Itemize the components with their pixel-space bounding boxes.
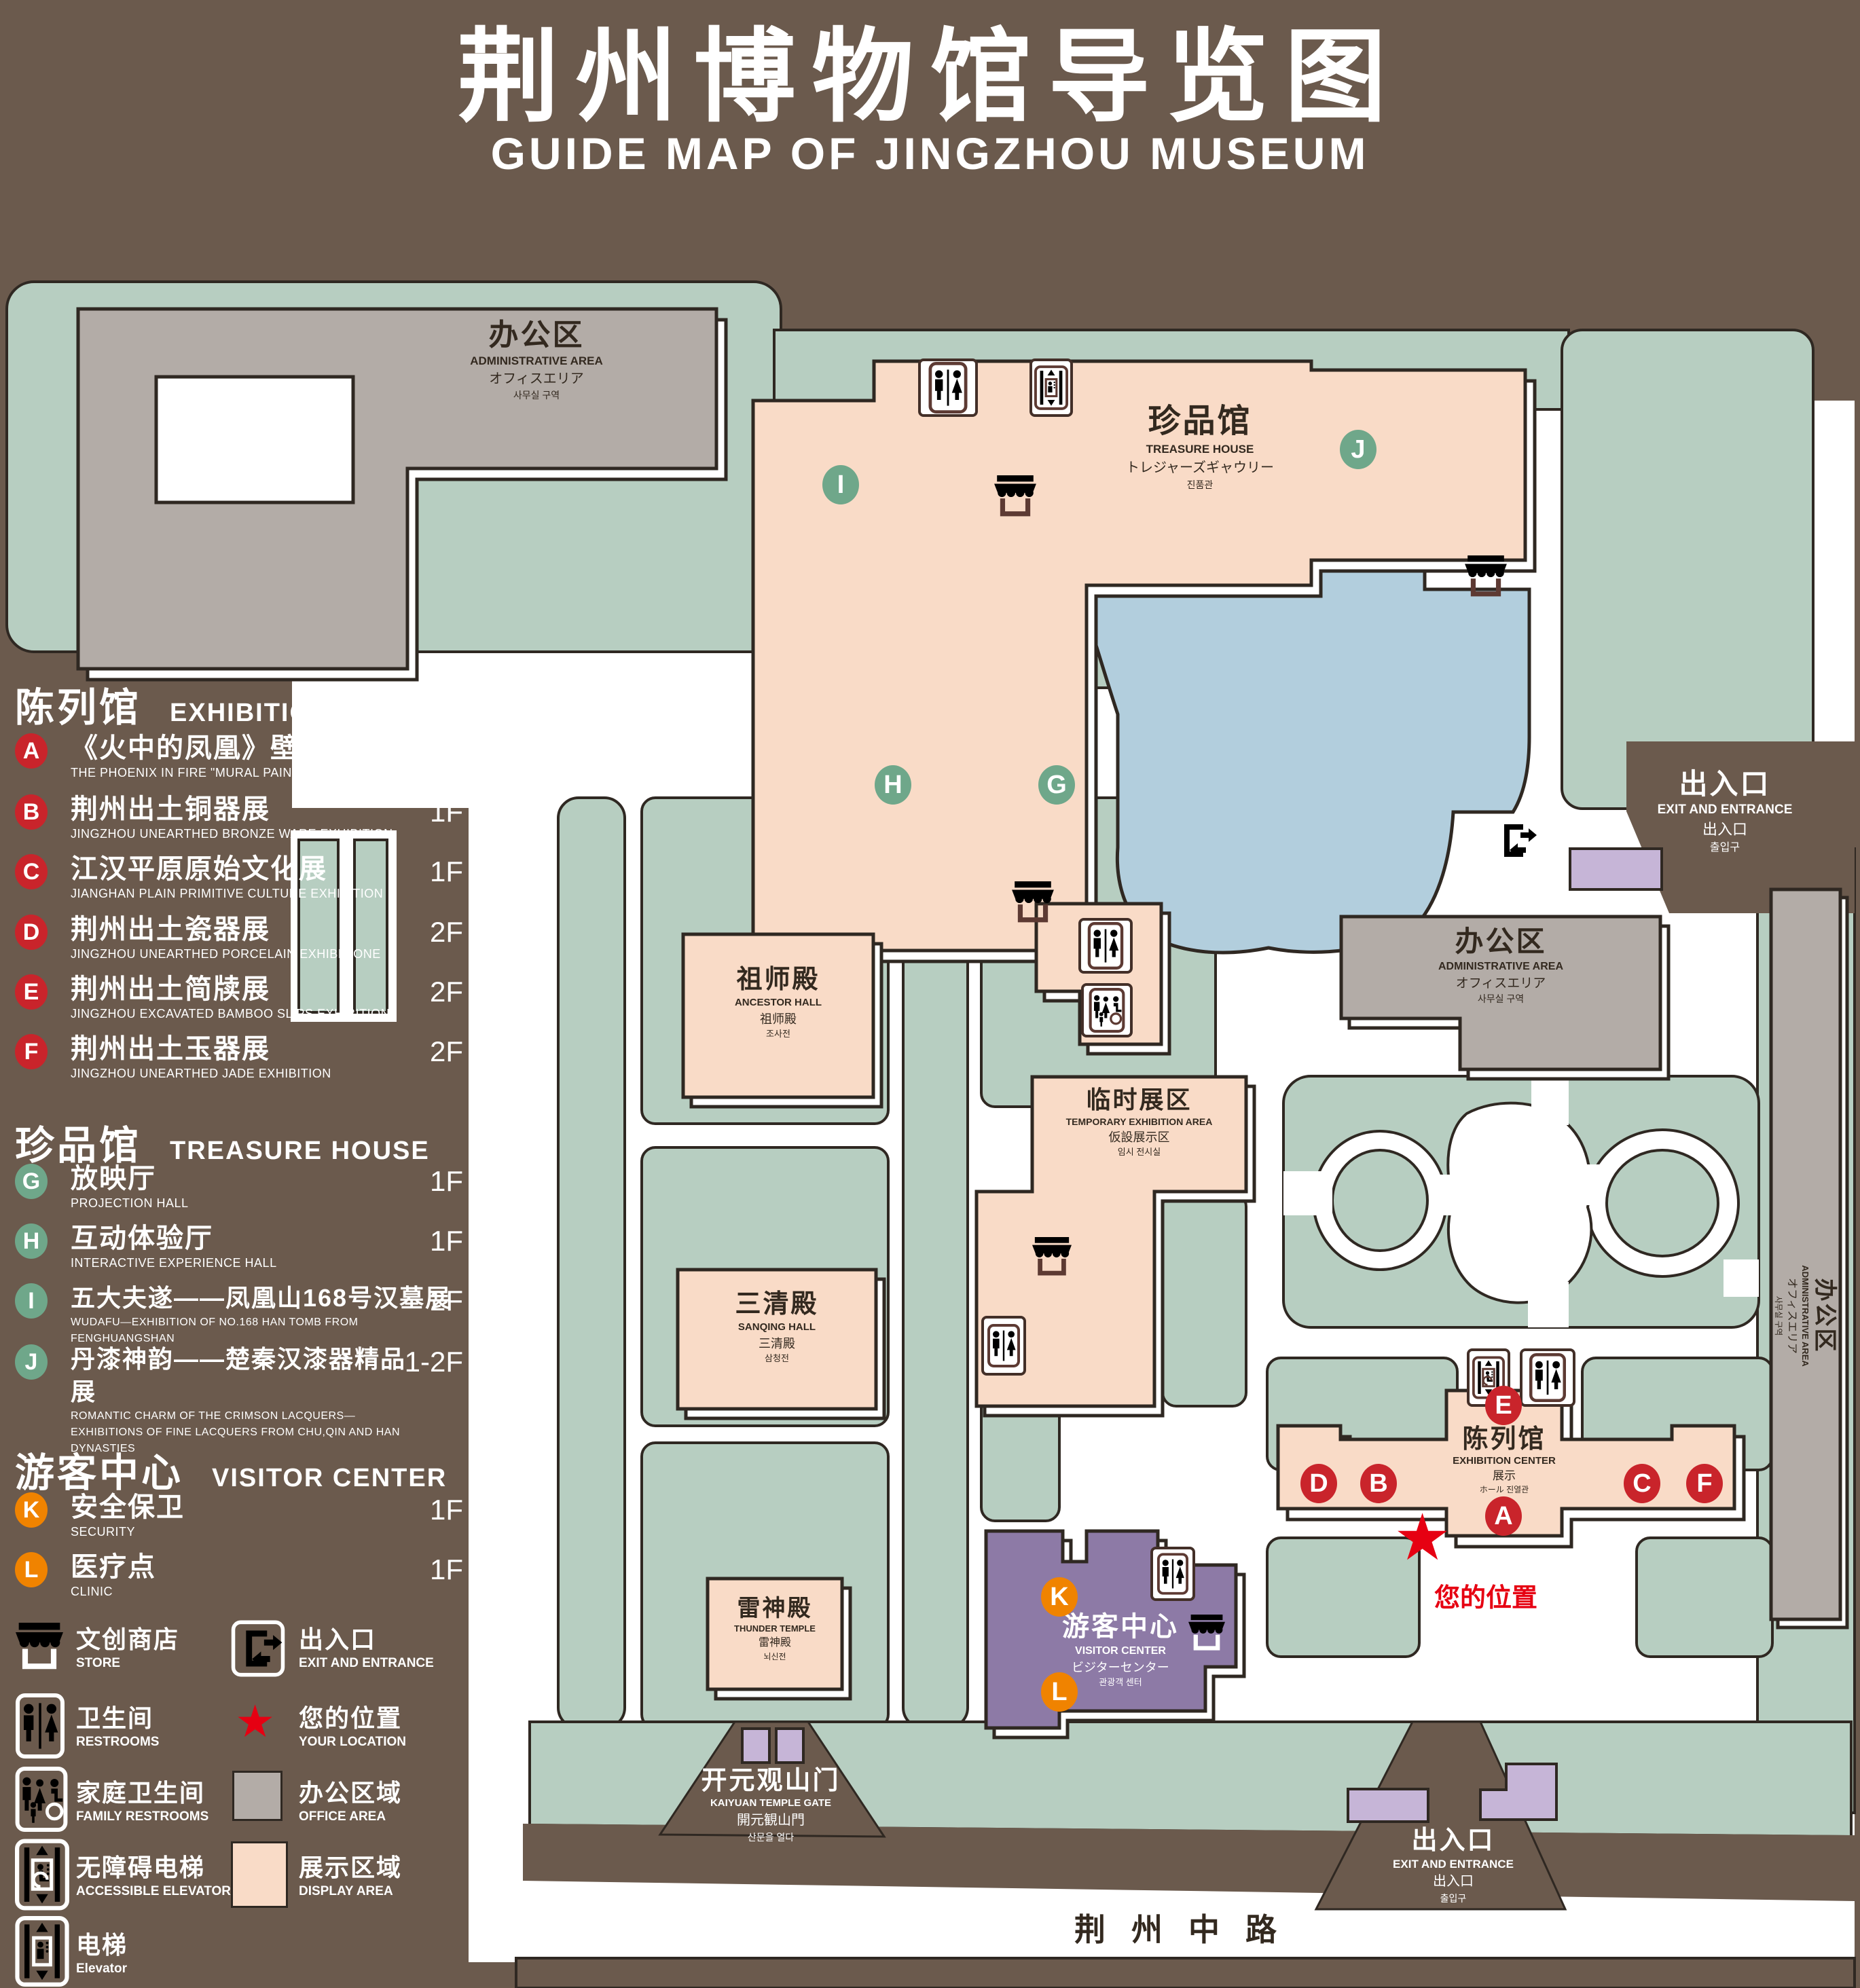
restroom-icon — [15, 1693, 65, 1759]
label-thunder-temple: 雷神殿 THUNDER TEMPLE 雷神殿 뇌신전 — [708, 1594, 842, 1662]
your-location-star-icon: ★ — [1393, 1506, 1451, 1570]
map-badge-f: F — [1686, 1464, 1723, 1503]
label-temporary-exhibition: 临时展区 TEMPORARY EXHIBITION AREA 仮設展示区 임시 … — [1032, 1085, 1246, 1158]
label-sanqing-hall: 三清殿 SANQING HALL 三清殿 삼청전 — [678, 1289, 876, 1365]
your-location-label: 您的位置 — [1391, 1577, 1581, 1614]
legend-item-f: F 荆州出土玉器展 JINGZHOU UNEARTHED JADE EXHIBI… — [15, 1033, 463, 1082]
legend-item-h: H 互动体验厅 INTERACTIVE EXPERIENCE HALL 1F — [15, 1222, 463, 1271]
restroom-icon — [1150, 1547, 1195, 1601]
legend-symbol-display-area: 展示区域DISPLAY AREA — [299, 1852, 402, 1900]
map-badge-l: L — [1041, 1672, 1078, 1712]
label-exit-bottom: 出入口 EXIT AND ENTRANCE 出入口 출입구 — [1345, 1825, 1562, 1905]
restroom-icon — [981, 1316, 1026, 1376]
legend-symbol-accessible-elevator: 无障碍电梯ACCESSIBLE ELEVATOR — [76, 1852, 231, 1900]
gate-block-bottom-left — [1348, 1789, 1428, 1822]
garden — [1283, 1076, 1759, 1327]
legend-symbol-restrooms: 卫生间RESTROOMS — [76, 1703, 159, 1750]
family-restroom-icon — [1081, 983, 1133, 1037]
map-badge-e: E — [1485, 1386, 1522, 1425]
map-badge-h: H — [875, 765, 911, 805]
map-badge-b: B — [1360, 1464, 1397, 1503]
restroom-icon — [1078, 918, 1133, 974]
lawn-top-right — [1562, 330, 1813, 809]
map-badge-j: J — [1340, 430, 1376, 469]
family-restroom-icon — [15, 1767, 68, 1832]
accessible-elevator-icon — [15, 1839, 69, 1911]
exit-icon — [1491, 815, 1539, 866]
display-area-swatch — [231, 1841, 288, 1908]
legend-symbol-elevator: 电梯Elevator — [76, 1930, 128, 1977]
label-exit-right: 出入口 EXIT AND ENTRANCE 出入口 출입구 — [1616, 767, 1834, 855]
restroom-icon — [918, 358, 978, 417]
legend-item-j: J 丹漆神韵——楚秦汉漆器精品展 ROMANTIC CHARM OF THE C… — [15, 1343, 463, 1457]
store-icon — [993, 475, 1038, 517]
label-admin-mid-right: 办公区 ADMINISTRATIVE AREA オフィスエリア 사무실 구역 — [1351, 925, 1650, 1006]
legend-heading-exhibition-center: 陈列馆 EXHIBITION CENTER — [15, 676, 454, 733]
label-ancestor-hall: 祖师殿 ANCESTOR HALL 祖师殿 조사전 — [683, 964, 873, 1040]
legend-symbol-store: 文创商店STORE — [76, 1624, 179, 1672]
legend-item-b: B 荆州出土铜器展 JINGZHOU UNEARTHED BRONZE WARE… — [15, 793, 463, 842]
legend-heading-visitor-center: 游客中心 VISITOR CENTER — [15, 1441, 447, 1498]
store-icon — [1187, 1615, 1226, 1651]
map-badge-a: A — [1485, 1496, 1522, 1536]
legend-item-d: D 荆州出土瓷器展 JINGZHOU UNEARTHED PORCELAIN E… — [15, 913, 463, 962]
legend-item-a: A 《火中的凤凰》壁画 THE PHOENIX IN FIRE "MURAL P… — [15, 732, 463, 781]
legend-item-g: G 放映厅 PROJECTION HALL 1F — [15, 1162, 463, 1211]
map-badge-i: I — [822, 465, 859, 504]
elevator-icon — [15, 1916, 69, 1987]
label-exhibition-center: 陈列馆 EXHIBITION CENTER 展示 ホール 진열관 — [1419, 1424, 1589, 1495]
store-icon — [1010, 881, 1055, 923]
map-badge-d: D — [1300, 1464, 1337, 1503]
office-area-swatch — [232, 1771, 282, 1821]
label-admin-right-strip: 办公区 ADMINISTRATIVE AREA オフィスエリア 사무실 구역 — [1773, 1180, 1838, 1452]
restroom-icon — [1520, 1348, 1575, 1407]
location-star-icon: ★ — [235, 1699, 275, 1744]
legend-item-c: C 江汉平原原始文化展 JIANGHAN PLAIN PRIMITIVE CUL… — [15, 853, 463, 902]
map-badge-k: K — [1041, 1577, 1078, 1617]
exit-icon — [231, 1620, 285, 1677]
legend-symbol-office-area: 办公区域OFFICE AREA — [299, 1778, 402, 1825]
legend-item-e: E 荆州出土简牍展 JINGZHOU EXCAVATED BAMBOO SLIP… — [15, 973, 463, 1022]
legend-symbol-family-restrooms: 家庭卫生间FAMILY RESTROOMS — [76, 1778, 208, 1825]
gate-pillar-left — [742, 1729, 769, 1763]
store-icon — [1031, 1237, 1073, 1276]
store-icon — [1463, 555, 1508, 597]
legend-symbol-exit: 出入口EXIT AND ENTRANCE — [299, 1624, 434, 1672]
label-treasure-house: 珍品馆 TREASURE HOUSE トレジャーズギャウリー 진품관 — [1057, 402, 1343, 492]
legend-symbol-your-location: 您的位置YOUR LOCATION — [299, 1703, 406, 1750]
label-kaiyuan-gate: 开元观山门 KAIYUAN TEMPLE GATE 開元観山門 산문을 열다 — [662, 1765, 879, 1844]
legend-item-l: L 医疗点 CLINIC 1F — [15, 1551, 463, 1600]
legend-item-i: I 五大夫遂——凤凰山168号汉墓展 WUDAFU—EXHIBITION OF … — [15, 1282, 463, 1347]
elevator-icon — [1029, 358, 1073, 417]
map-badge-g: G — [1038, 765, 1075, 805]
gate-pillar-right — [776, 1729, 803, 1763]
legend-item-k: K 安全保卫 SECURITY 1F — [15, 1491, 463, 1540]
store-icon — [12, 1623, 67, 1670]
map-badge-c: C — [1624, 1464, 1660, 1503]
road-label: 荆州中路 — [815, 1905, 1562, 1950]
label-admin-top-left: 办公区 ADMINISTRATIVE AREA オフィスエリア 사무실 구역 — [380, 318, 693, 402]
